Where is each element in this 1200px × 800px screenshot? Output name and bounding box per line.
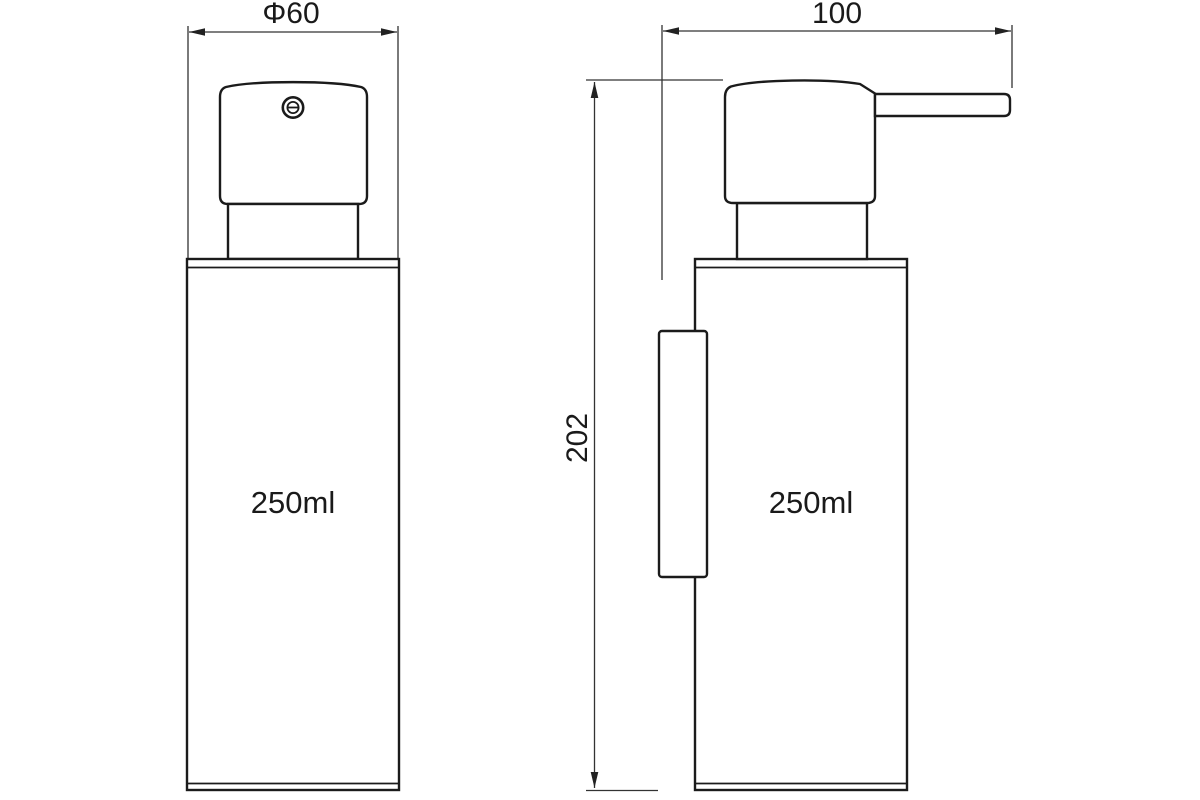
front-capacity-label: 250ml bbox=[251, 485, 335, 520]
front-pump-head bbox=[220, 82, 367, 204]
front-diameter-label: Φ60 bbox=[262, 0, 319, 30]
front-pump-collar bbox=[228, 204, 358, 259]
front-dim-arrow-left bbox=[189, 28, 205, 36]
side-height-label: 202 bbox=[561, 413, 594, 463]
front-dim-arrow-right bbox=[381, 28, 397, 36]
side-width-arrow-left bbox=[663, 27, 679, 35]
side-pump-head bbox=[725, 80, 875, 203]
side-capacity-label: 250ml bbox=[769, 485, 853, 520]
front-bottle-body bbox=[187, 259, 399, 790]
side-spout bbox=[875, 94, 1010, 116]
side-height-arrow-top bbox=[591, 82, 599, 98]
technical-drawing-page: Φ60 250ml bbox=[0, 0, 1200, 800]
side-view: 100 202 bbox=[561, 0, 1012, 791]
side-pump-collar bbox=[737, 203, 867, 259]
dispenser-technical-drawing: Φ60 250ml bbox=[0, 0, 1200, 800]
side-width-label: 100 bbox=[812, 0, 862, 30]
side-bottle-body bbox=[695, 259, 907, 790]
front-view: Φ60 250ml bbox=[187, 0, 399, 790]
side-width-arrow-right bbox=[995, 27, 1011, 35]
side-height-arrow-bottom bbox=[591, 772, 599, 788]
side-wall-bracket bbox=[659, 331, 707, 577]
